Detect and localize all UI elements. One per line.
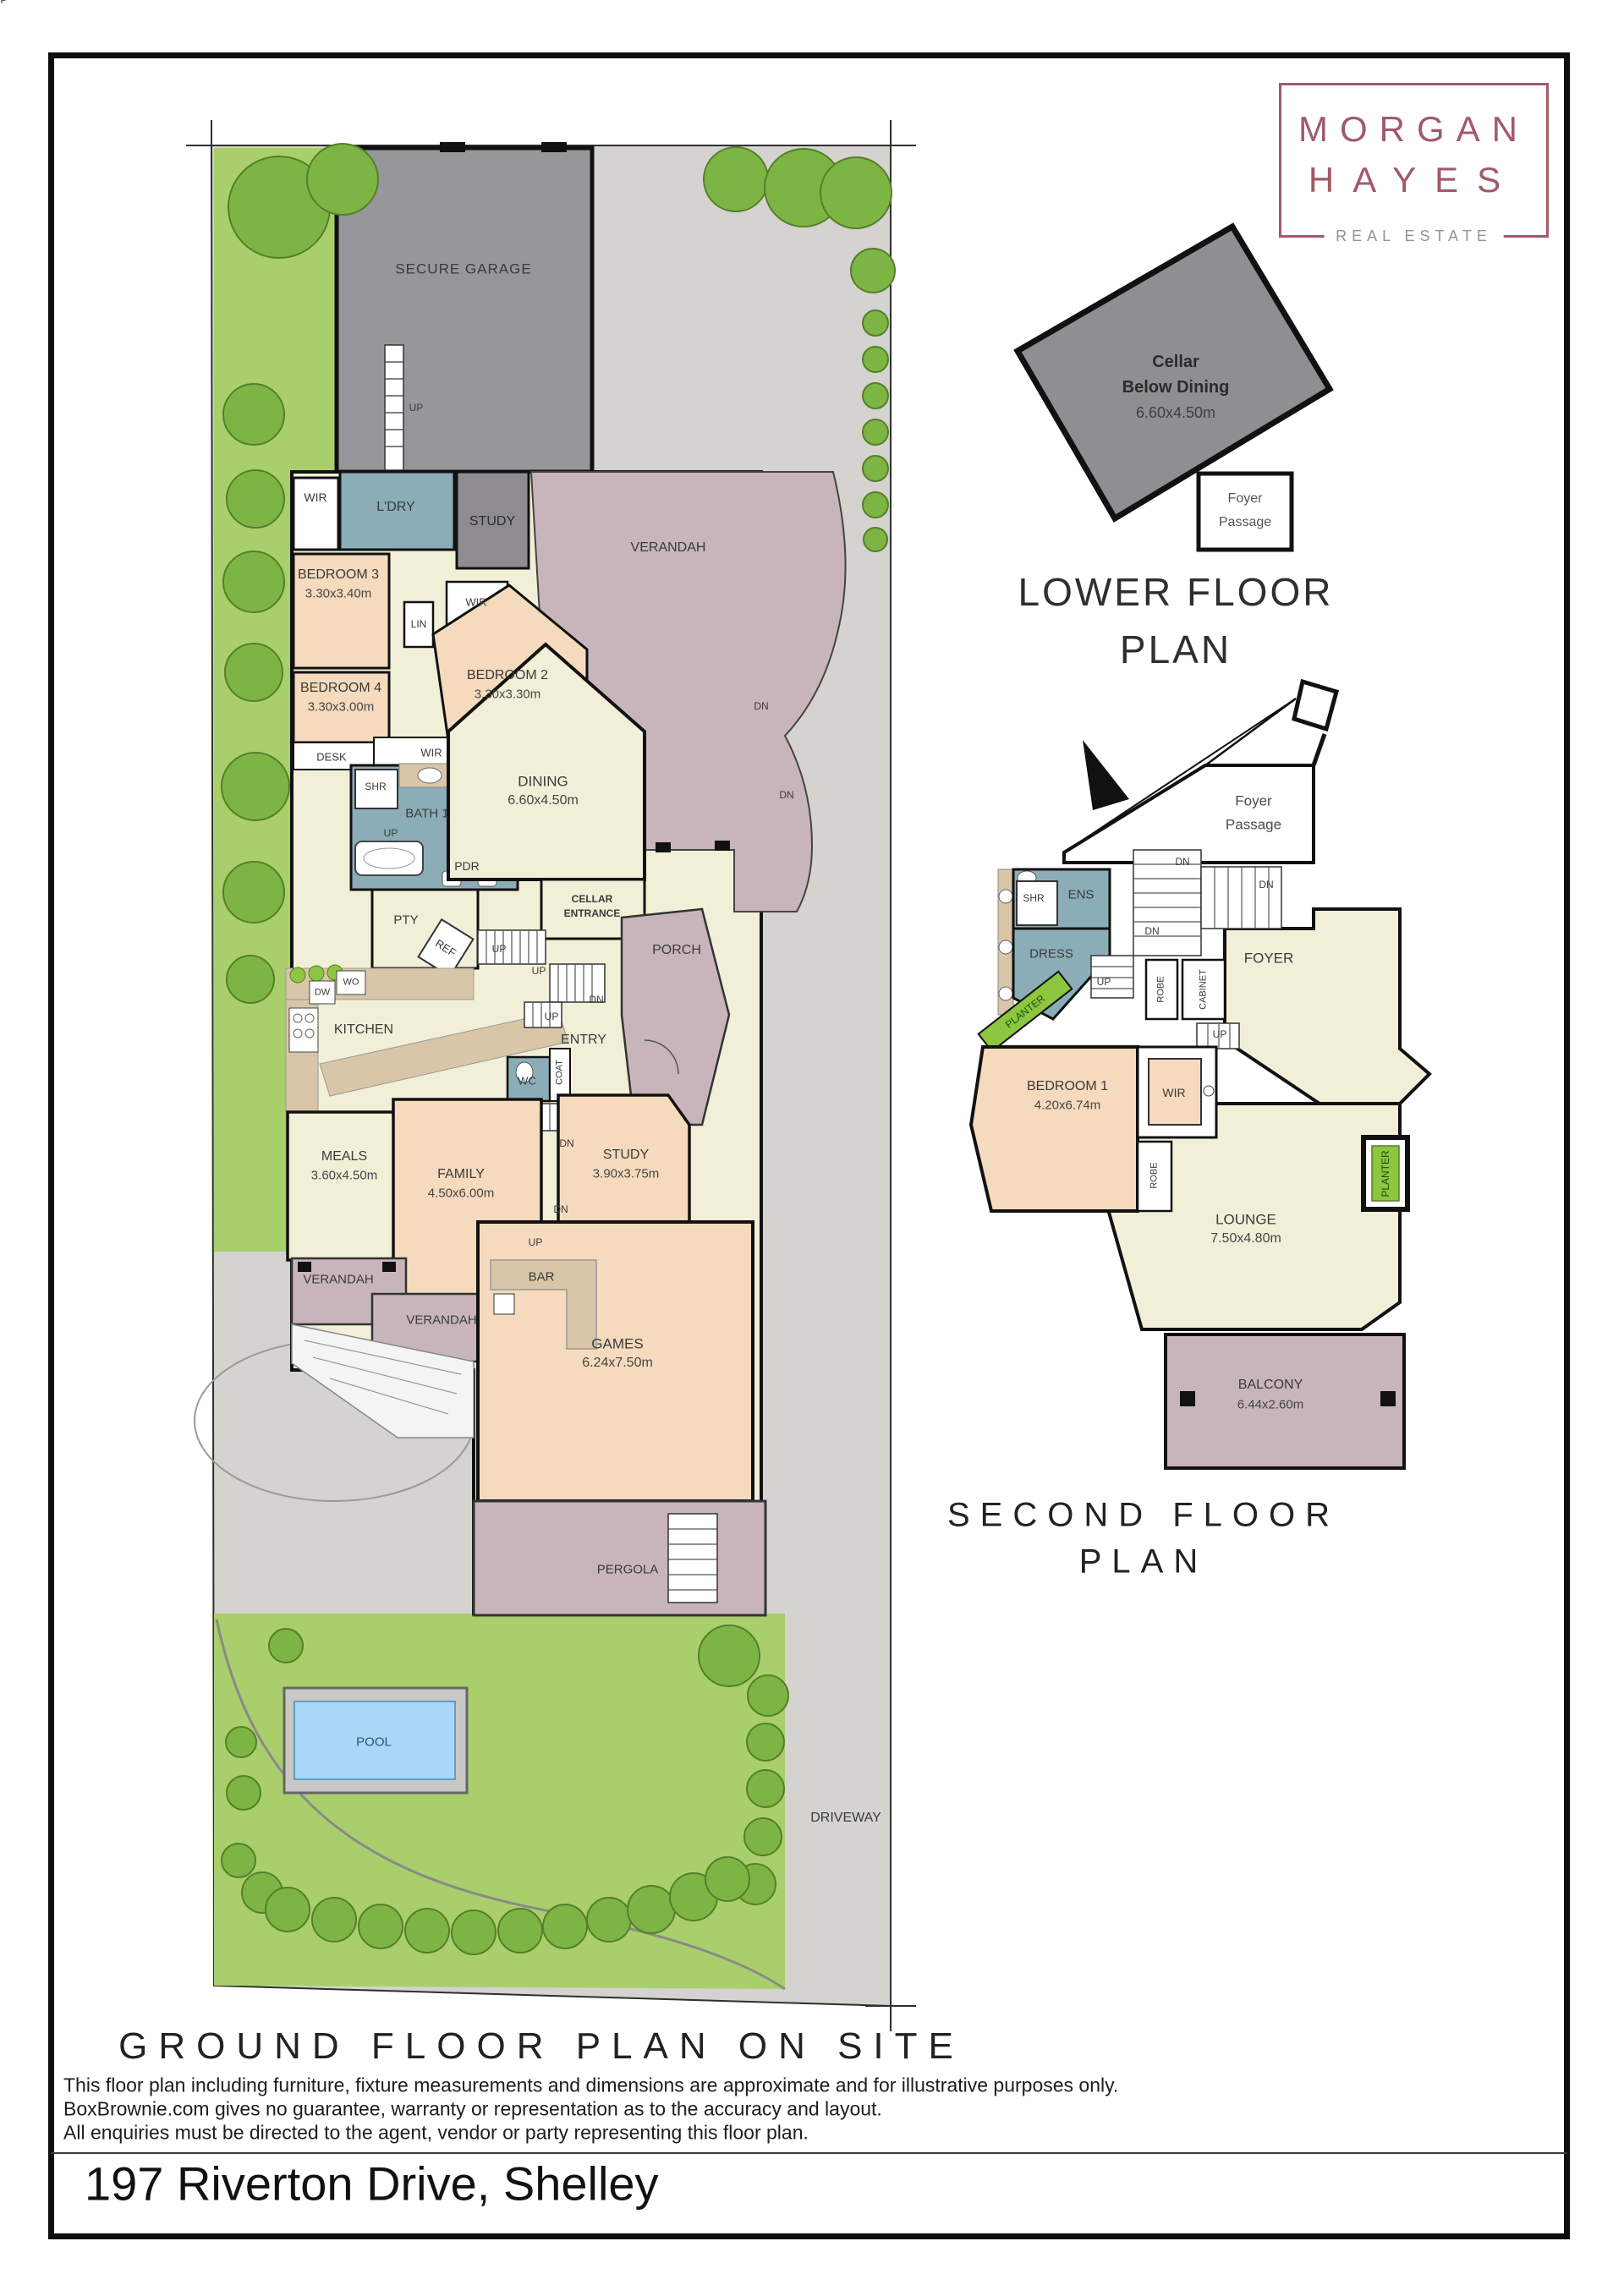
sf-wall-wedge (1083, 740, 1129, 810)
label-verandah-w2: VERANDAH (406, 1314, 476, 1327)
label-porch: PORCH (652, 944, 701, 957)
label-sf-foyer: FOYER (1244, 951, 1294, 966)
second-floor-title-line2: PLAN (1079, 1543, 1209, 1581)
label-verandah-top: VERANDAH (631, 541, 706, 555)
label-cellar-dims: 6.60x4.50m (1136, 405, 1215, 420)
label-sf-cabinet: CABINET (1199, 969, 1209, 1010)
label-kitchen: KITCHEN (334, 1023, 393, 1037)
sf-foyer (1225, 909, 1429, 1104)
label-bed4-name: BEDROOM 4 (300, 682, 381, 695)
label-study2-dims: 3.90x3.75m (593, 1168, 659, 1181)
label-entry: ENTRY (561, 1033, 606, 1047)
label-dining-name: DINING (518, 775, 568, 789)
label-study-top: STUDY (469, 515, 515, 529)
label-bar: BAR (529, 1271, 555, 1284)
label-wo: WO (343, 978, 359, 988)
pergola-stair (668, 1514, 717, 1603)
label-meals-dims: 3.60x4.50m (311, 1170, 377, 1182)
lower-floor-title-line2: PLAN (1120, 627, 1232, 672)
bar-sink (494, 1294, 514, 1314)
label-secure-garage: SECURE GARAGE (395, 262, 531, 277)
label-cellar-ent2: ENTRANCE (564, 908, 621, 918)
label-sf-passage1: Foyer (1235, 794, 1271, 808)
floorplan-drawing (0, 0, 1624, 2296)
label-games-name: GAMES (591, 1337, 643, 1351)
label-sf-passage2: Passage (1226, 818, 1281, 832)
footer-divider (51, 2152, 1567, 2154)
label-cellar-sub: Below Dining (1122, 379, 1230, 396)
label-pergola: PERGOLA (597, 1564, 659, 1576)
label-bed2-name: BEDROOM 2 (467, 669, 548, 682)
label-pool: POOL (356, 1736, 392, 1749)
property-address: 197 Riverton Drive, Shelley (85, 2156, 659, 2211)
label-sf-robe2: ROBE (1150, 1162, 1160, 1188)
lower-foyer-passage (1199, 474, 1292, 550)
label-bath-up: UP (384, 828, 398, 838)
label-garage-up: UP (409, 403, 424, 413)
cooktop (289, 1008, 318, 1052)
label-sf-lounge-dims: 7.50x4.80m (1210, 1232, 1281, 1246)
ground-floor-title: GROUND FLOOR PLAN ON SITE (118, 2025, 964, 2068)
label-up3: UP (545, 1011, 559, 1022)
label-verandah-w1: VERANDAH (303, 1274, 373, 1286)
label-family-name: FAMILY (437, 1168, 485, 1181)
bathtub (355, 841, 423, 875)
label-sf-lounge-name: LOUNGE (1215, 1213, 1276, 1227)
label-sf-dn3: DN (1144, 926, 1159, 936)
label-up5: UP (529, 1237, 543, 1247)
label-wir2: WIR (465, 597, 486, 608)
label-sf-bed1-dims: 4.20x6.74m (1034, 1099, 1100, 1112)
label-sf-dress: DRESS (1029, 948, 1073, 961)
label-bath1: BATH 1 (405, 808, 448, 820)
label-study2-name: STUDY (603, 1148, 649, 1162)
label-bed2-dims: 3.30x3.30m (475, 688, 540, 701)
label-family-dims: 4.50x6.00m (428, 1187, 494, 1200)
garage-stair (385, 345, 403, 470)
label-up2: UP (532, 966, 546, 976)
label-up1: UP (492, 944, 507, 954)
pergola-area (474, 1501, 765, 1615)
lower-floor-title-line1: LOWER FLOOR (1018, 569, 1334, 615)
label-cellar-name: Cellar (1152, 353, 1199, 370)
label-desk: DESK (316, 752, 346, 763)
sf-spire (1294, 682, 1336, 729)
label-sf-dn1: DN (1175, 857, 1189, 867)
label-coat: COAT (556, 1060, 565, 1085)
label-bed4-dims: 3.30x3.00m (308, 701, 374, 714)
garage-room (337, 148, 592, 472)
sf-bedroom1 (971, 1047, 1138, 1211)
disclaimer-line2: BoxBrownie.com gives no guarantee, warra… (63, 2098, 882, 2121)
label-sf-planter2: PLANTER (1380, 1150, 1391, 1197)
label-lin: LIN (411, 619, 427, 629)
meals-room (288, 1112, 406, 1260)
label-meals-name: MEALS (321, 1150, 367, 1164)
label-dining-dims: 6.60x4.50m (507, 794, 579, 808)
logo-line2: HAYES (1281, 160, 1546, 200)
label-wc: WC (518, 1076, 536, 1087)
floorplan-page: MORGAN HAYES REAL ESTATE LOWER FLOOR PLA… (0, 0, 1624, 2296)
sf-stair-a (1133, 850, 1201, 956)
label-bed3-name: BEDROOM 3 (298, 568, 379, 582)
label-sf-balcony-name: BALCONY (1238, 1378, 1303, 1392)
label-sf-up1: UP (1097, 977, 1111, 987)
label-pty: PTY (393, 914, 418, 927)
label-dw: DW (315, 989, 330, 998)
morgan-hayes-logo: MORGAN HAYES REAL ESTATE (1279, 83, 1549, 238)
label-up4: UP (0, 0, 7, 5)
label-verandah-dn2: DN (779, 790, 793, 800)
second-floor-title-line1: SECOND FLOOR (947, 1497, 1340, 1535)
label-driveway: DRIVEWAY (810, 1811, 881, 1825)
label-sf-robe1: ROBE (1157, 976, 1166, 1002)
wir1-room (294, 478, 338, 550)
label-shr: SHR (365, 781, 386, 792)
label-lf-foyer1: Foyer (1228, 492, 1263, 506)
label-sf-up2: UP (1213, 1029, 1227, 1039)
label-games-dims: 6.24x7.50m (582, 1356, 653, 1370)
label-dn3: DN (553, 1204, 568, 1214)
label-verandah-dn1: DN (754, 701, 768, 711)
label-wir1: WIR (304, 491, 326, 503)
label-wir3: WIR (420, 748, 442, 759)
label-bed3-dims: 3.30x3.40m (305, 588, 371, 600)
label-ldry: L'DRY (376, 501, 414, 514)
disclaimer-line3: All enquiries must be directed to the ag… (63, 2122, 809, 2145)
logo-tagline: REAL ESTATE (1324, 227, 1504, 245)
label-dn1: DN (589, 995, 603, 1005)
label-sf-balcony-dims: 6.44x2.60m (1237, 1399, 1303, 1411)
logo-line1: MORGAN (1281, 109, 1546, 150)
label-pdr: PDR (454, 860, 480, 872)
disclaimer-line1: This floor plan including furniture, fix… (63, 2074, 1118, 2097)
label-sf-wir: WIR (1162, 1087, 1185, 1099)
label-sf-shr: SHR (1023, 893, 1044, 903)
label-sf-dn2: DN (1259, 879, 1273, 890)
label-sf-ens: ENS (1068, 889, 1095, 901)
label-dn2: DN (559, 1138, 573, 1148)
label-lf-foyer2: Passage (1219, 516, 1271, 529)
label-cellar-ent1: CELLAR (572, 894, 613, 904)
label-sf-bed1-name: BEDROOM 1 (1027, 1080, 1108, 1093)
